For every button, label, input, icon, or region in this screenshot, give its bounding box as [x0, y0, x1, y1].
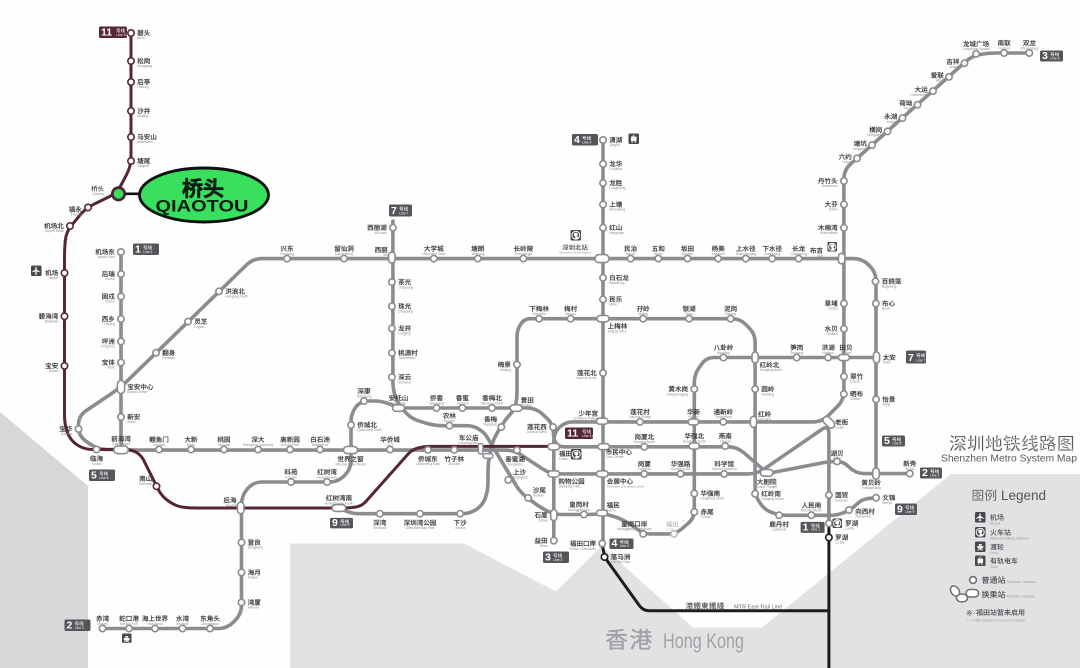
svg-text:Line 5: Line 5 — [892, 441, 901, 445]
svg-text:Shaibu: Shaibu — [850, 397, 860, 401]
svg-text:11: 11 — [101, 27, 112, 39]
svg-text:Yitian: Yitian — [539, 544, 547, 548]
svg-text:Danzhutou: Danzhutou — [822, 184, 838, 188]
svg-text:Taoyuan: Taoyuan — [218, 443, 231, 447]
svg-text:Chiwei: Chiwei — [701, 515, 711, 519]
svg-text:Houting: Houting — [137, 85, 149, 89]
svg-text:Taian: Taian — [883, 361, 891, 365]
svg-text:Hong Kong: Hong Kong — [663, 630, 744, 653]
svg-text:Gangxia North: Gangxia North — [634, 440, 655, 444]
svg-text:University Town: University Town — [422, 252, 445, 256]
svg-text:Dafen: Dafen — [829, 208, 838, 212]
svg-text:Hubei: Hubei — [833, 457, 842, 461]
svg-text:Shenkang: Shenkang — [357, 394, 372, 398]
svg-text:Ferry: Ferry — [990, 551, 998, 555]
svg-text:Huaqiang Rd: Huaqiang Rd — [671, 467, 690, 471]
svg-text:Xili: Xili — [383, 253, 388, 257]
svg-text:Shangtang: Shangtang — [609, 208, 625, 212]
svg-text:Yannan: Yannan — [720, 439, 731, 443]
svg-text:Mumianwan: Mumianwan — [820, 231, 838, 235]
svg-text:Tanglang: Tanglang — [471, 252, 485, 256]
svg-text:Sea World: Sea World — [147, 622, 162, 626]
svg-text:Chegongmiao: Chegongmiao — [458, 441, 479, 445]
svg-text:Xingdong: Xingdong — [280, 252, 294, 256]
svg-text:Childrens Palace: Childrens Palace — [573, 417, 598, 421]
svg-text:Buxin: Buxin — [882, 307, 890, 311]
svg-text:Hongshuwan: Hongshuwan — [317, 475, 336, 479]
svg-text:Hongling: Hongling — [758, 417, 771, 421]
svg-text:Line 1: Line 1 — [811, 528, 820, 532]
svg-text:Xinxiu: Xinxiu — [905, 467, 914, 471]
svg-text:OCT: OCT — [387, 443, 394, 447]
svg-text:Gangxia: Gangxia — [638, 467, 650, 471]
svg-text:Baoan Center: Baoan Center — [127, 390, 148, 394]
svg-text:Civic Center: Civic Center — [606, 455, 625, 459]
svg-text:Maanshan: Maanshan — [137, 140, 153, 144]
svg-text:Honghu: Honghu — [822, 351, 834, 355]
svg-text:Line 11: Line 11 — [116, 33, 127, 37]
svg-text:Huangbeiling: Huangbeiling — [861, 486, 880, 490]
svg-text:Liuyue: Liuyue — [842, 160, 852, 164]
svg-text:Line 4: Line 4 — [582, 140, 591, 144]
svg-text:Yonghu: Yonghu — [886, 120, 897, 124]
svg-text:Bitou: Bitou — [137, 36, 145, 40]
svg-text:Keyuan: Keyuan — [285, 475, 296, 479]
svg-text:Airport: Airport — [49, 276, 59, 280]
svg-text:Ailian: Ailian — [936, 79, 944, 83]
svg-text:Line 5: Line 5 — [99, 476, 108, 480]
svg-text:Airport East: Airport East — [98, 255, 115, 259]
svg-text:Line 11: Line 11 — [582, 434, 593, 438]
svg-text:1: 1 — [135, 244, 141, 256]
svg-text:Legend: Legend — [1001, 488, 1046, 503]
svg-text:Airport: Airport — [990, 522, 1000, 526]
svg-text:Xiangxicun: Xiangxicun — [855, 515, 871, 519]
svg-text:Wenjin: Wenjin — [882, 501, 892, 505]
svg-text:Shenzhen University: Shenzhen University — [243, 443, 274, 447]
svg-text:Henggang: Henggang — [867, 133, 882, 137]
svg-text:Longsheng: Longsheng — [609, 186, 625, 190]
svg-text:Houhai: Houhai — [226, 504, 237, 508]
svg-text:Baoan: Baoan — [49, 369, 59, 373]
svg-text:Qiaoxiang: Qiaoxiang — [429, 401, 444, 405]
svg-text:7: 7 — [391, 205, 397, 217]
svg-text:Buji: Buji — [818, 254, 824, 258]
svg-text:Antuoshan: Antuoshan — [391, 401, 407, 405]
svg-text:Window of the World: Window of the World — [335, 462, 366, 466]
svg-text:Qiaotou: Qiaotou — [92, 192, 104, 196]
svg-text:Line 4: Line 4 — [620, 544, 629, 548]
svg-text:Xinan: Xinan — [127, 420, 136, 424]
svg-text:Changlingpi: Changlingpi — [515, 252, 533, 256]
svg-text:Zhuguang: Zhuguang — [398, 310, 413, 314]
svg-text:Xixiang: Xixiang — [104, 322, 115, 326]
svg-text:Xiameilin: Xiameilin — [532, 312, 546, 316]
svg-text:Xiangmei: Xiangmei — [483, 423, 497, 427]
svg-text:Yangmei: Yangmei — [712, 252, 725, 256]
svg-text:Caopu: Caopu — [828, 307, 838, 311]
svg-text:Shenzhen North Station: Shenzhen North Station — [559, 251, 591, 255]
svg-text:Convention & Exhibition Center: Convention & Exhibition Center — [607, 485, 644, 489]
svg-text:Lo Wu: Lo Wu — [835, 541, 845, 545]
svg-text:Huaxin: Huaxin — [688, 415, 698, 419]
svg-text:Hongling North: Hongling North — [760, 368, 782, 372]
svg-text:* : Futian Station is not yet: * : Futian Station is not yet in service — [967, 619, 1025, 623]
svg-text:*: * — [682, 520, 684, 526]
svg-text:Yuanling: Yuanling — [761, 392, 774, 396]
svg-text:Xiashuijing: Xiashuijing — [764, 252, 780, 256]
svg-text:Common Stations: Common Stations — [1006, 580, 1036, 584]
svg-text:Honglang North: Honglang North — [225, 295, 248, 299]
svg-text:Luohu: Luohu — [845, 527, 854, 531]
svg-text:Line 3: Line 3 — [553, 558, 562, 562]
svg-text:Line 2: Line 2 — [930, 473, 939, 477]
svg-text:Shopping Park: Shopping Park — [558, 485, 580, 489]
svg-text:Grand Theater: Grand Theater — [756, 485, 778, 489]
svg-text:1: 1 — [803, 522, 809, 534]
svg-text:Hongshuwan South: Hongshuwan South — [325, 501, 354, 505]
svg-text:Changlong: Changlong — [791, 252, 807, 256]
svg-text:Shuiwan: Shuiwan — [176, 622, 189, 626]
svg-text:Baohua: Baohua — [61, 432, 73, 436]
svg-text:Heao: Heao — [904, 107, 912, 111]
svg-text:Huanggangcun: Huanggangcun — [568, 508, 591, 512]
svg-text:Shenzhen Metro System Map: Shenzhen Metro System Map — [941, 454, 1077, 465]
svg-text:11: 11 — [567, 428, 578, 440]
svg-text:Meijing: Meijing — [500, 368, 511, 372]
svg-text:National Railway Stations: National Railway Stations — [990, 537, 1029, 541]
svg-text:Longcheng Square: Longcheng Square — [962, 47, 990, 51]
svg-text:Renmin South: Renmin South — [801, 509, 822, 513]
svg-text:Line 7: Line 7 — [916, 358, 925, 362]
svg-text:QIAOTOU: QIAOTOU — [156, 198, 249, 216]
svg-text:Huaqiang North: Huaqiang North — [683, 439, 706, 443]
svg-text:Hongling South: Hongling South — [761, 497, 784, 501]
svg-text:Baguling: Baguling — [717, 351, 730, 355]
svg-text:7: 7 — [908, 352, 914, 364]
svg-text:Wanxia: Wanxia — [248, 606, 259, 610]
svg-text:Huaqiang South: Huaqiang South — [701, 497, 725, 501]
svg-text:Minzhi: Minzhi — [626, 252, 636, 256]
svg-text:Wuhe: Wuhe — [654, 252, 663, 256]
svg-text:Shenyun: Shenyun — [398, 380, 411, 384]
svg-text:Nonglin: Nonglin — [444, 419, 455, 423]
svg-text:Meicun: Meicun — [565, 312, 576, 316]
svg-text:Bihaiwan: Bihaiwan — [45, 320, 59, 324]
svg-text:Shangmeilin: Shangmeilin — [608, 329, 626, 333]
svg-text:9: 9 — [332, 517, 338, 529]
svg-text:Futian Checkpoint: Futian Checkpoint — [569, 547, 596, 551]
svg-text:Bantian: Bantian — [682, 252, 693, 256]
svg-text:3: 3 — [545, 552, 551, 564]
svg-text:Universiade: Universiade — [910, 93, 928, 97]
svg-text:Shangshuijing: Shangshuijing — [735, 252, 756, 256]
svg-text:Tram: Tram — [990, 565, 998, 569]
svg-text:MTR East Rail Line: MTR East Rail Line — [734, 605, 782, 611]
svg-text:Pingzhou: Pingzhou — [101, 345, 115, 349]
svg-text:Shixia: Shixia — [539, 518, 548, 522]
svg-text:Shuanglong: Shuanglong — [1020, 46, 1038, 50]
svg-text:Jixiang: Jixiang — [949, 65, 959, 69]
svg-text:Airport North: Airport North — [45, 229, 64, 233]
svg-text:Nanshan: Nanshan — [139, 482, 152, 486]
svg-text:Daxin: Daxin — [187, 443, 196, 447]
svg-text:Qianhaiwan: Qianhaiwan — [112, 442, 130, 446]
svg-text:Shekou Port: Shekou Port — [120, 622, 138, 626]
svg-text:Dengliang: Dengliang — [248, 546, 263, 550]
svg-text:Haiyue: Haiyue — [248, 576, 258, 580]
svg-text:Xiangmei North: Xiangmei North — [481, 401, 504, 405]
svg-text:Hi-tech Park: Hi-tech Park — [281, 443, 299, 447]
svg-text:Jingtian: Jingtian — [521, 404, 533, 408]
svg-text:Huangmugang: Huangmugang — [666, 392, 688, 396]
svg-text:Lianhua West: Lianhua West — [527, 430, 547, 434]
svg-text:Ludancun: Ludancun — [772, 528, 787, 532]
svg-text:Tangwei: Tangwei — [137, 164, 149, 168]
svg-text:3: 3 — [1042, 50, 1048, 62]
svg-text:Linhai: Linhai — [92, 462, 101, 466]
svg-text:Line 7: Line 7 — [399, 211, 408, 215]
svg-text:Lok Ma Chau: Lok Ma Chau — [611, 560, 631, 564]
svg-text:5: 5 — [91, 470, 97, 482]
svg-text:Chiwan: Chiwan — [97, 622, 108, 626]
svg-text:2: 2 — [67, 620, 73, 632]
svg-text:Longjing: Longjing — [398, 332, 411, 336]
svg-text:Dongjiaotou: Dongjiaotou — [201, 622, 219, 626]
svg-text:Science Museum: Science Museum — [712, 467, 738, 471]
svg-text:Xiangmi: Xiangmi — [456, 401, 468, 405]
svg-text:Qinghu: Qinghu — [609, 143, 620, 147]
svg-text:Lingzhi: Lingzhi — [194, 325, 205, 329]
svg-text:4: 4 — [612, 538, 618, 550]
svg-text:Line 3: Line 3 — [1050, 56, 1059, 60]
svg-text:4: 4 — [574, 134, 580, 146]
svg-text:Xiasha: Xiasha — [455, 526, 465, 530]
svg-text:Liuxiandong: Liuxiandong — [335, 252, 353, 256]
svg-text:Laojie: Laojie — [835, 426, 844, 430]
svg-text:Line 9: Line 9 — [340, 523, 349, 527]
svg-text:Guomao: Guomao — [835, 498, 848, 502]
svg-text:Baishilong: Baishilong — [609, 281, 624, 285]
svg-text:Line 1: Line 1 — [143, 250, 152, 254]
svg-text:Fumin: Fumin — [607, 509, 616, 513]
svg-text:Taoyuancun: Taoyuancun — [398, 356, 416, 360]
svg-text:Baigelong: Baigelong — [882, 285, 897, 289]
svg-text:Xiangmihu: Xiangmihu — [507, 463, 523, 467]
svg-text:Minle: Minle — [609, 303, 617, 307]
svg-text:Shenwan: Shenwan — [373, 526, 387, 530]
svg-text:Futian: Futian — [666, 527, 675, 531]
svg-text:Nigang: Nigang — [725, 312, 736, 316]
svg-text:Shawei: Shawei — [533, 494, 544, 498]
svg-text:Huanggang Checkpoint: Huanggang Checkpoint — [617, 527, 652, 531]
svg-text:Line 9: Line 9 — [905, 510, 914, 514]
svg-text:Sungang: Sungang — [790, 351, 803, 355]
svg-text:Futian: Futian — [559, 457, 568, 461]
svg-text:Yijing: Yijing — [882, 403, 890, 407]
svg-text:Tangkeng: Tangkeng — [852, 147, 866, 151]
svg-text:Shajing: Shajing — [137, 114, 148, 118]
svg-text:Maling: Maling — [638, 312, 648, 316]
svg-text:Yinhu: Yinhu — [685, 312, 693, 316]
svg-text:Qiaocheng North: Qiaocheng North — [357, 428, 382, 432]
svg-text:Fanshen: Fanshen — [162, 356, 175, 360]
svg-text:※·: ※· — [966, 609, 975, 618]
svg-text:9: 9 — [897, 504, 903, 516]
svg-text:Gushu: Gushu — [105, 300, 115, 304]
svg-text:Tianbei: Tianbei — [841, 351, 852, 355]
svg-text:Chaguang: Chaguang — [398, 285, 413, 289]
svg-text:Baoti: Baoti — [107, 366, 115, 370]
svg-text:Liyumen: Liyumen — [153, 443, 166, 447]
svg-text:Shuibei: Shuibei — [827, 332, 838, 336]
svg-text:Cuizhu: Cuizhu — [850, 380, 860, 384]
svg-text:Fuyong: Fuyong — [71, 213, 82, 217]
svg-text:Transfer Stations: Transfer Stations — [1006, 595, 1035, 599]
svg-text:Qiaocheng East: Qiaocheng East — [416, 462, 440, 466]
svg-text:2: 2 — [922, 467, 928, 479]
svg-text:Lianhua Village: Lianhua Village — [629, 415, 652, 419]
svg-text:Shangsha: Shangsha — [513, 476, 528, 480]
svg-text:Zhuzilin: Zhuzilin — [449, 462, 461, 466]
svg-text:Longhua: Longhua — [609, 167, 622, 171]
svg-text:Baishizhou: Baishizhou — [312, 443, 328, 447]
svg-text:Lianhua North: Lianhua North — [576, 376, 597, 380]
svg-text:Songgang: Songgang — [137, 64, 152, 68]
svg-text:Shenzhen Bay Park: Shenzhen Bay Park — [405, 526, 434, 530]
svg-text:Xili Lake: Xili Lake — [374, 231, 387, 235]
svg-text:Hourui: Hourui — [105, 277, 115, 281]
svg-text:Line 2: Line 2 — [75, 626, 84, 630]
svg-text:Nanlian: Nanlian — [999, 46, 1010, 50]
svg-text:Hongshan: Hongshan — [609, 231, 624, 235]
svg-text:Tongxinling: Tongxinling — [715, 415, 732, 419]
svg-text:5: 5 — [884, 435, 890, 447]
